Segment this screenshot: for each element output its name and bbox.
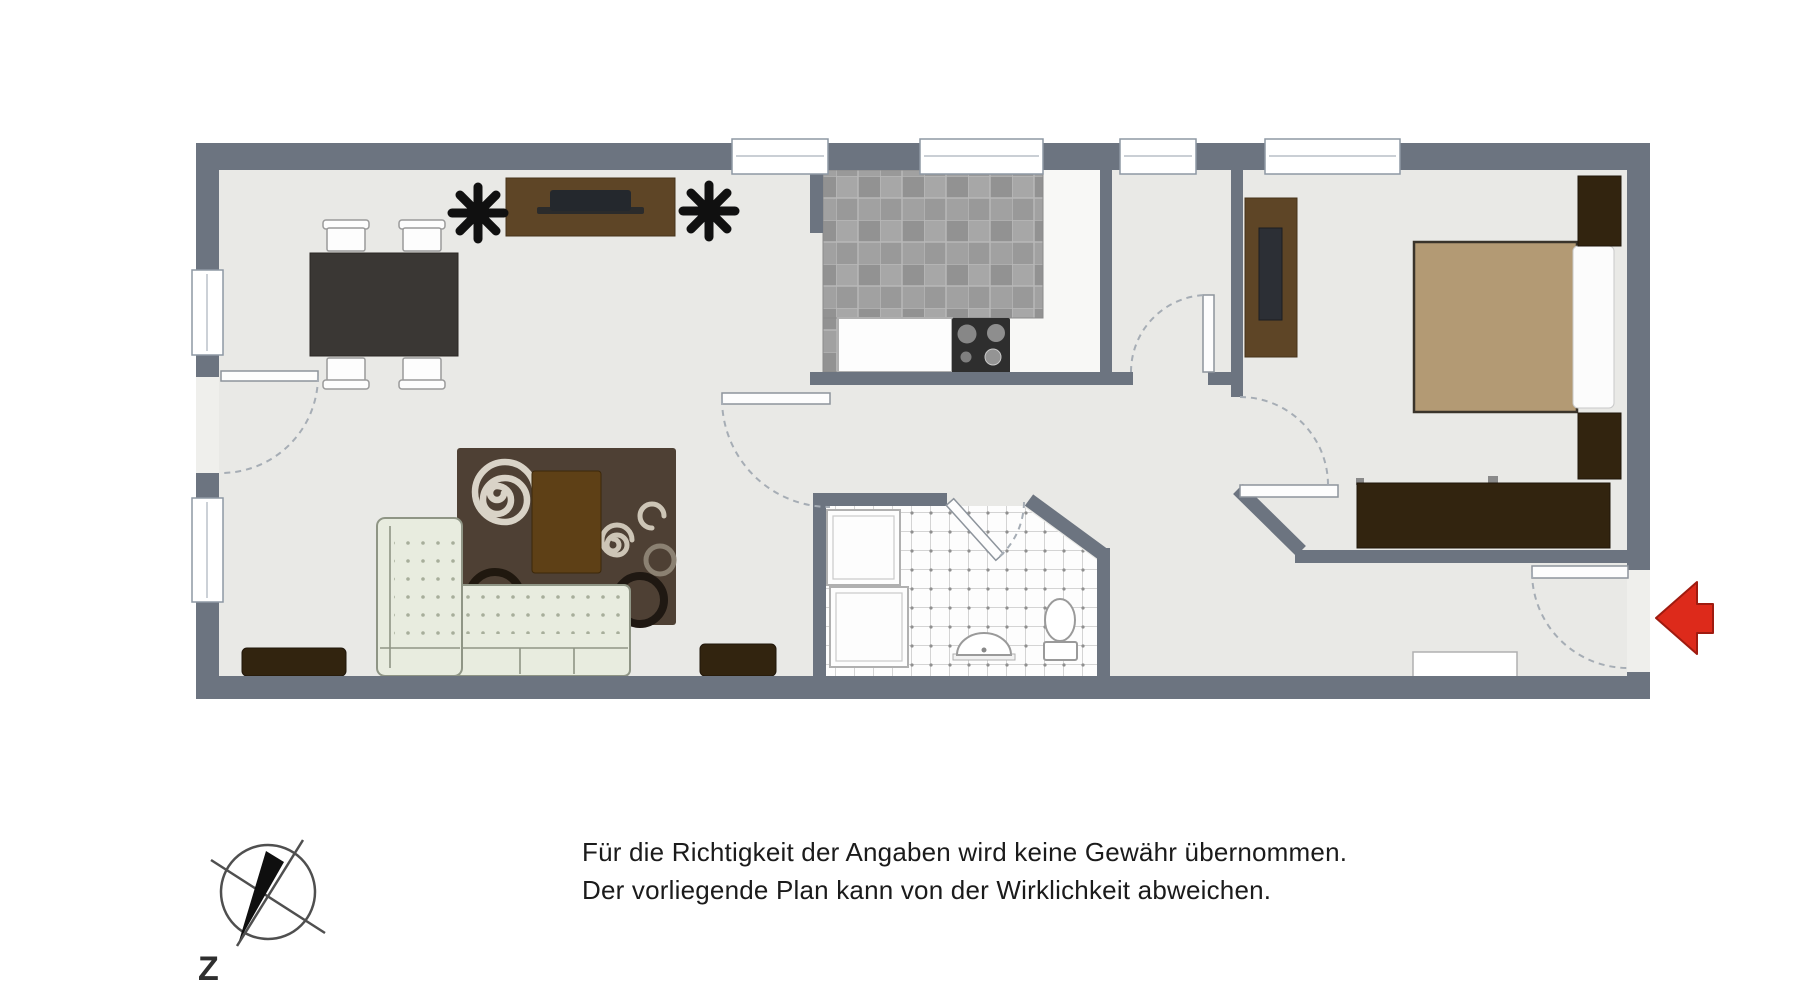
disclaimer-line-2: Der vorliegende Plan kann von der Wirkli… [582, 871, 1347, 909]
plant-icon [452, 187, 504, 239]
outer-wall-bottom [196, 676, 1650, 699]
floorplan-page: Z Für die Richtigkeit der Angaben wird k… [0, 0, 1800, 1000]
wall-bathroom-right [1097, 548, 1110, 676]
bedroom-wardrobe [1356, 476, 1610, 548]
disclaimer-text: Für die Richtigkeit der Angaben wird kei… [582, 833, 1347, 909]
bed [1414, 242, 1614, 412]
ottoman [532, 471, 601, 573]
dining-chair [399, 220, 445, 251]
window [732, 139, 828, 174]
window [192, 270, 223, 355]
bed-duvet [1414, 242, 1577, 412]
window [920, 139, 1043, 174]
dining-chair [323, 358, 369, 389]
bench [242, 648, 346, 676]
disclaimer-line-1: Für die Richtigkeit der Angaben wird kei… [582, 833, 1347, 871]
shower [827, 510, 900, 585]
doormat [1413, 652, 1517, 678]
window [192, 498, 223, 602]
bed-pillows [1573, 246, 1614, 408]
wall-bathroom-left [813, 493, 826, 676]
nightstand [1578, 413, 1621, 479]
bedroom-door [1240, 485, 1338, 497]
plant-icon [683, 185, 735, 237]
toilet [1044, 599, 1077, 660]
wall-kitchen-left-stub [810, 170, 823, 233]
wardrobe [1245, 198, 1297, 357]
compass-label: Z [198, 950, 219, 988]
dining-chair [323, 220, 369, 251]
kitchen-counter [838, 318, 952, 372]
kitchen-tiles [823, 170, 1043, 318]
entrance-arrow-icon [1656, 582, 1713, 654]
storage-door [1203, 295, 1214, 372]
wall-hall [810, 372, 1133, 385]
wall-kitchen-right [1100, 170, 1112, 372]
nightstand [1578, 176, 1621, 246]
compass-icon: Z [198, 840, 325, 988]
kitchen-stove [952, 318, 1010, 376]
window [1265, 139, 1400, 174]
entrance-door [1532, 566, 1628, 578]
dining-chair [399, 358, 445, 389]
bench [700, 644, 776, 676]
wall-bedroom-west [1231, 170, 1243, 397]
window [1120, 139, 1196, 174]
compass-needle [239, 851, 284, 941]
washing-machine [830, 587, 908, 667]
wall-corridor-top [1295, 550, 1627, 563]
sideboard [506, 178, 675, 236]
dining-table [310, 253, 458, 356]
kitchen-tile-strip [823, 318, 838, 372]
balcony-door [221, 371, 318, 381]
wall-bathroom-top [813, 493, 947, 506]
living-room-door [722, 393, 830, 404]
